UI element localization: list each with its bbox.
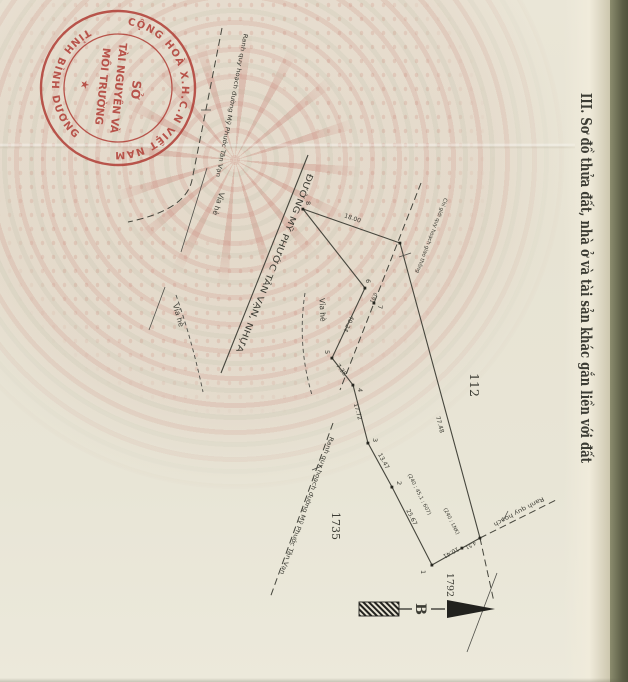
sidewalk-label-2: Vỉa hè [171, 303, 186, 329]
planning-boundary-label-1: Ranh quy hoạch đường Mỹ Phước Tân Vạn [214, 33, 249, 178]
cadastral-diagram: III. Sơ đồ thửa đất, nhà ở và tài sản kh… [0, 0, 628, 682]
stamp-arc-top-text: CỘNG HOÀ X.H.C.N VIỆT NAM [113, 16, 198, 168]
dimension-long-edge: 77.48 [434, 415, 445, 434]
section-title: III. Sơ đồ thửa đất, nhà ở và tài sản kh… [577, 93, 595, 463]
dimension-4-3: 17.72 [352, 402, 363, 421]
point-2: 2 [395, 481, 403, 485]
north-arrow: B [359, 573, 497, 652]
stamp-star-icon: ★ [78, 79, 92, 90]
dimension-top: 18.00 [343, 212, 362, 224]
point-6: 6 [364, 279, 372, 283]
dimension-front: 40.24 [341, 314, 355, 333]
sidewalk-edge-2 [149, 287, 165, 330]
point-8: 8 [304, 201, 312, 205]
sidewalk-curve-3 [302, 293, 312, 395]
point-3: 3 [371, 438, 379, 442]
official-red-stamp: CỘNG HOÀ X.H.C.N VIỆT NAM TỈNH BÌNH DƯƠN… [33, 3, 202, 172]
north-label: B [412, 603, 428, 615]
road-name-label: ĐƯỜNG MỸ PHƯỚC TÂN VẠN, NHỰA [233, 172, 316, 355]
planning-boundary-se [480, 500, 556, 538]
dimension-bottom: 10.41 [441, 545, 460, 560]
point-7: 7 [376, 305, 384, 309]
dimension-bottom-small: 4.51 [464, 540, 477, 551]
parcel-number-1735: 1735 [329, 512, 342, 540]
sidewalk-label-3: Vỉa hè [317, 298, 327, 322]
dimension-2-1: 25.67 [404, 508, 418, 527]
scanned-certificate-page: III. Sơ đồ thửa đất, nhà ở và tài sản kh… [0, 0, 628, 682]
planning-boundary-label-2: Ranh quy hoạch đường Mỹ Phước Tân Vạn [278, 436, 335, 576]
north-arrow-tail [359, 602, 399, 616]
north-arrow-head [447, 600, 495, 618]
point-5: 5 [323, 350, 331, 354]
planning-line-tick [399, 253, 411, 257]
point-1: 1 [419, 570, 427, 574]
svg-text:CỘNG HOÀ X.H.C.N VIỆT NAM: CỘNG HOÀ X.H.C.N VIỆT NAM [113, 16, 198, 168]
stamp-line1: SỞ [128, 80, 146, 101]
planning-boundary-label-3: Ranh quy hoạch [492, 495, 545, 528]
parcel-number-1792: 1792 [444, 573, 455, 597]
parcel-number-112: 112 [467, 373, 482, 397]
traffic-planning-label: Chỉ giới quy hoạch giao thông [414, 197, 449, 274]
point-4: 4 [356, 388, 364, 392]
sidewalk-edge-1 [181, 168, 207, 252]
sidewalk-label-1: Vỉa hè [211, 191, 227, 217]
area-note-2: (240 ; LNK) [442, 507, 461, 536]
boundary-extension-dashed [480, 538, 494, 602]
road-centerline [221, 155, 308, 373]
parcel-vertex-points [302, 208, 482, 567]
